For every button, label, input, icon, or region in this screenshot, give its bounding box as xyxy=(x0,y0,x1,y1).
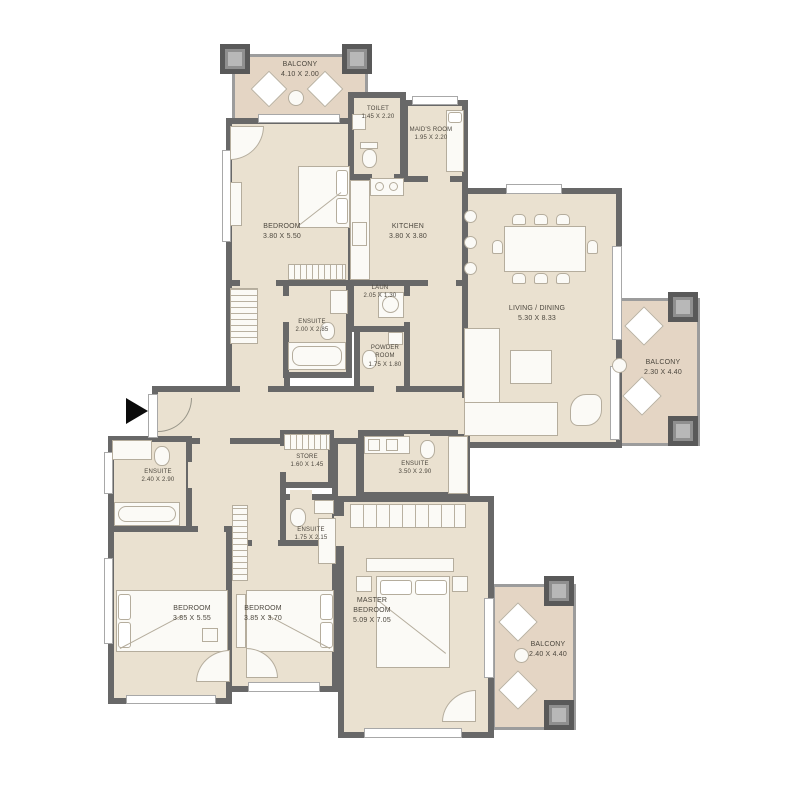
dining-table-icon xyxy=(504,226,586,272)
door-powder xyxy=(374,386,396,398)
wardrobe-icon xyxy=(230,288,258,344)
label-ensuite-master: ENSUITE3.50 X 2.90 xyxy=(399,460,432,477)
label-store: STORE1.60 X 1.45 xyxy=(291,453,324,470)
chair-icon xyxy=(534,214,548,225)
label-master-bedroom: MASTER BEDROOM5.09 X 7.05 xyxy=(346,596,398,625)
patio-table-icon xyxy=(612,358,627,373)
door-ensuite-mid xyxy=(290,490,312,502)
label-bedroom-mid: BEDROOM3.85 X 3.70 xyxy=(244,604,282,624)
kitchen-sink-icon xyxy=(352,222,367,246)
pillow-icon xyxy=(415,580,447,595)
pillow-icon xyxy=(336,198,348,224)
burner-icon xyxy=(389,182,398,191)
door-ensuite-left xyxy=(188,462,198,488)
label-living-dining: LIVING / DINING5.30 X 8.33 xyxy=(509,304,565,324)
window-master xyxy=(364,728,462,738)
balcony-door-living xyxy=(610,366,620,440)
toilet-icon xyxy=(290,508,306,527)
wardrobe-icon xyxy=(232,505,248,581)
pillar-icon xyxy=(544,576,574,606)
label-ensuite-mid: ENSUITE1.75 X 2.15 xyxy=(295,526,328,543)
coffee-table-icon xyxy=(510,350,552,384)
window-maids xyxy=(412,96,458,105)
pillow-icon xyxy=(320,594,333,620)
pillar-icon xyxy=(220,44,250,74)
sofa-icon xyxy=(464,328,500,408)
chair-icon xyxy=(556,214,570,225)
closet-icon xyxy=(350,504,466,528)
pillar-icon xyxy=(668,416,698,446)
nightstand-icon xyxy=(356,576,372,592)
vanity-icon xyxy=(112,440,152,460)
basin-icon xyxy=(368,439,380,451)
pillar-icon xyxy=(342,44,372,74)
label-balcony-bottom: BALCONY2.40 X 4.40 xyxy=(524,640,572,660)
pillow-icon xyxy=(448,112,462,123)
label-ensuite-top: ENSUITE2.00 X 2.85 xyxy=(296,318,329,335)
wardrobe-icon xyxy=(288,264,346,280)
chair-icon xyxy=(587,240,598,254)
door-bedroom-left xyxy=(198,526,224,540)
label-balcony-right: BALCONY2.30 X 4.40 xyxy=(639,358,687,378)
toilet-icon xyxy=(420,440,435,459)
planter-icon xyxy=(464,210,477,223)
opening-hall-dressing xyxy=(240,384,268,394)
chair-icon xyxy=(556,273,570,284)
chair-icon xyxy=(534,273,548,284)
planter-icon xyxy=(464,262,477,275)
dresser-icon xyxy=(230,182,242,226)
toilet-tank-icon xyxy=(360,142,378,149)
vanity-icon xyxy=(330,290,348,314)
label-bedroom-left: BEDROOM3.85 X 5.55 xyxy=(173,604,211,624)
basin-icon xyxy=(386,439,398,451)
bathtub-inner xyxy=(292,346,342,366)
pillar-icon xyxy=(544,700,574,730)
door-ensuite-top xyxy=(279,296,289,322)
label-powder: POWDER ROOM1.75 X 1.80 xyxy=(365,344,405,369)
dresser-icon xyxy=(366,558,454,572)
chair-icon xyxy=(512,273,526,284)
armchair-icon xyxy=(570,394,602,426)
label-toilet: TOILET1.45 X 2.20 xyxy=(362,105,395,122)
label-ensuite-left: ENSUITE2.40 X 2.90 xyxy=(142,468,175,485)
label-bedroom-top: BEDROOM3.80 X 5.50 xyxy=(263,222,301,242)
label-kitchen: KITCHEN3.80 X 3.80 xyxy=(389,222,427,242)
chair-icon xyxy=(492,240,503,254)
toilet-icon xyxy=(362,149,377,168)
toilet-icon xyxy=(154,446,170,466)
window-living-right xyxy=(612,246,622,340)
entry-opening xyxy=(148,394,158,438)
window-bedroom-left-side xyxy=(104,558,113,644)
floor-plan: BALCONY4.10 X 2.00 TOILET1.45 X 2.20 MAI… xyxy=(0,0,800,800)
window-bedroom-mid xyxy=(248,682,320,692)
side-table-icon xyxy=(202,628,218,642)
nightstand-icon xyxy=(452,576,468,592)
pillow-icon xyxy=(380,580,412,595)
opening-hall-corridor xyxy=(200,436,230,446)
balcony-door-top xyxy=(258,114,340,123)
door-maids xyxy=(428,176,450,186)
entry-arrow-icon xyxy=(126,398,148,424)
pillar-icon xyxy=(668,292,698,322)
shelf-icon xyxy=(284,434,330,450)
planter-icon xyxy=(464,236,477,249)
patio-table-icon xyxy=(288,90,304,106)
bathtub-inner xyxy=(118,506,176,522)
balcony-door-master xyxy=(484,598,494,678)
label-laundry: LAUN2.05 X 1.30 xyxy=(364,284,397,301)
door-laundry xyxy=(404,296,416,322)
window-bedroom-left-bottom xyxy=(126,695,216,704)
pillow-icon xyxy=(118,594,131,620)
opening-kitchen-passage xyxy=(428,280,456,292)
pillow-icon xyxy=(336,170,348,196)
chair-icon xyxy=(512,214,526,225)
door-bedroom-mid xyxy=(252,536,278,548)
shower-icon xyxy=(448,436,468,494)
window-living-top xyxy=(506,184,562,194)
burner-icon xyxy=(375,182,384,191)
sofa-icon xyxy=(464,402,558,436)
label-maids: MAID'S ROOM1.95 X 2.20 xyxy=(410,126,453,143)
vanity-icon xyxy=(314,500,334,514)
label-balcony-top: BALCONY4.10 X 2.00 xyxy=(281,60,319,80)
